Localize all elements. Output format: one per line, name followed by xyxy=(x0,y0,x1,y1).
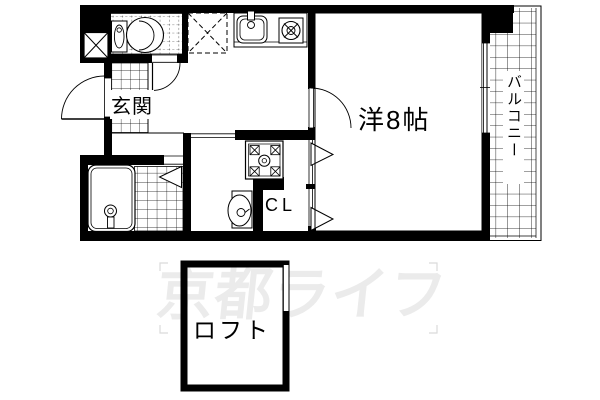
closet-label: CL xyxy=(265,195,296,216)
toilet-door-swing-icon xyxy=(153,63,181,91)
loft-label: ロフト xyxy=(193,311,271,345)
washing-machine-pan-icon xyxy=(246,141,284,179)
refrigerator-space-dashed-x-icon xyxy=(188,13,227,53)
closet-folding-doors-icon xyxy=(309,140,333,231)
loft-window-icon xyxy=(283,265,289,311)
balcony-label: バルコニー xyxy=(503,74,524,159)
toilet-icon xyxy=(127,18,164,53)
toilet-tank-basin-icon xyxy=(112,21,128,52)
genkan-label: 玄関 xyxy=(110,90,154,119)
kitchen-sink-icon xyxy=(237,11,267,43)
kitchen-counter xyxy=(234,11,307,47)
washbasin-icon xyxy=(228,191,252,228)
bathtub-icon xyxy=(88,165,135,232)
floor-plan-drawing xyxy=(0,0,600,400)
floor-plan-page: 京都ライフ xyxy=(0,0,600,400)
entrance-door-swing-icon xyxy=(62,76,105,119)
pipe-shaft-x-icon xyxy=(84,33,108,59)
bathroom xyxy=(88,165,183,232)
main-room-label: 洋8帖 xyxy=(358,100,430,137)
gas-burner-icon xyxy=(279,18,303,43)
toilet-room xyxy=(108,14,183,55)
